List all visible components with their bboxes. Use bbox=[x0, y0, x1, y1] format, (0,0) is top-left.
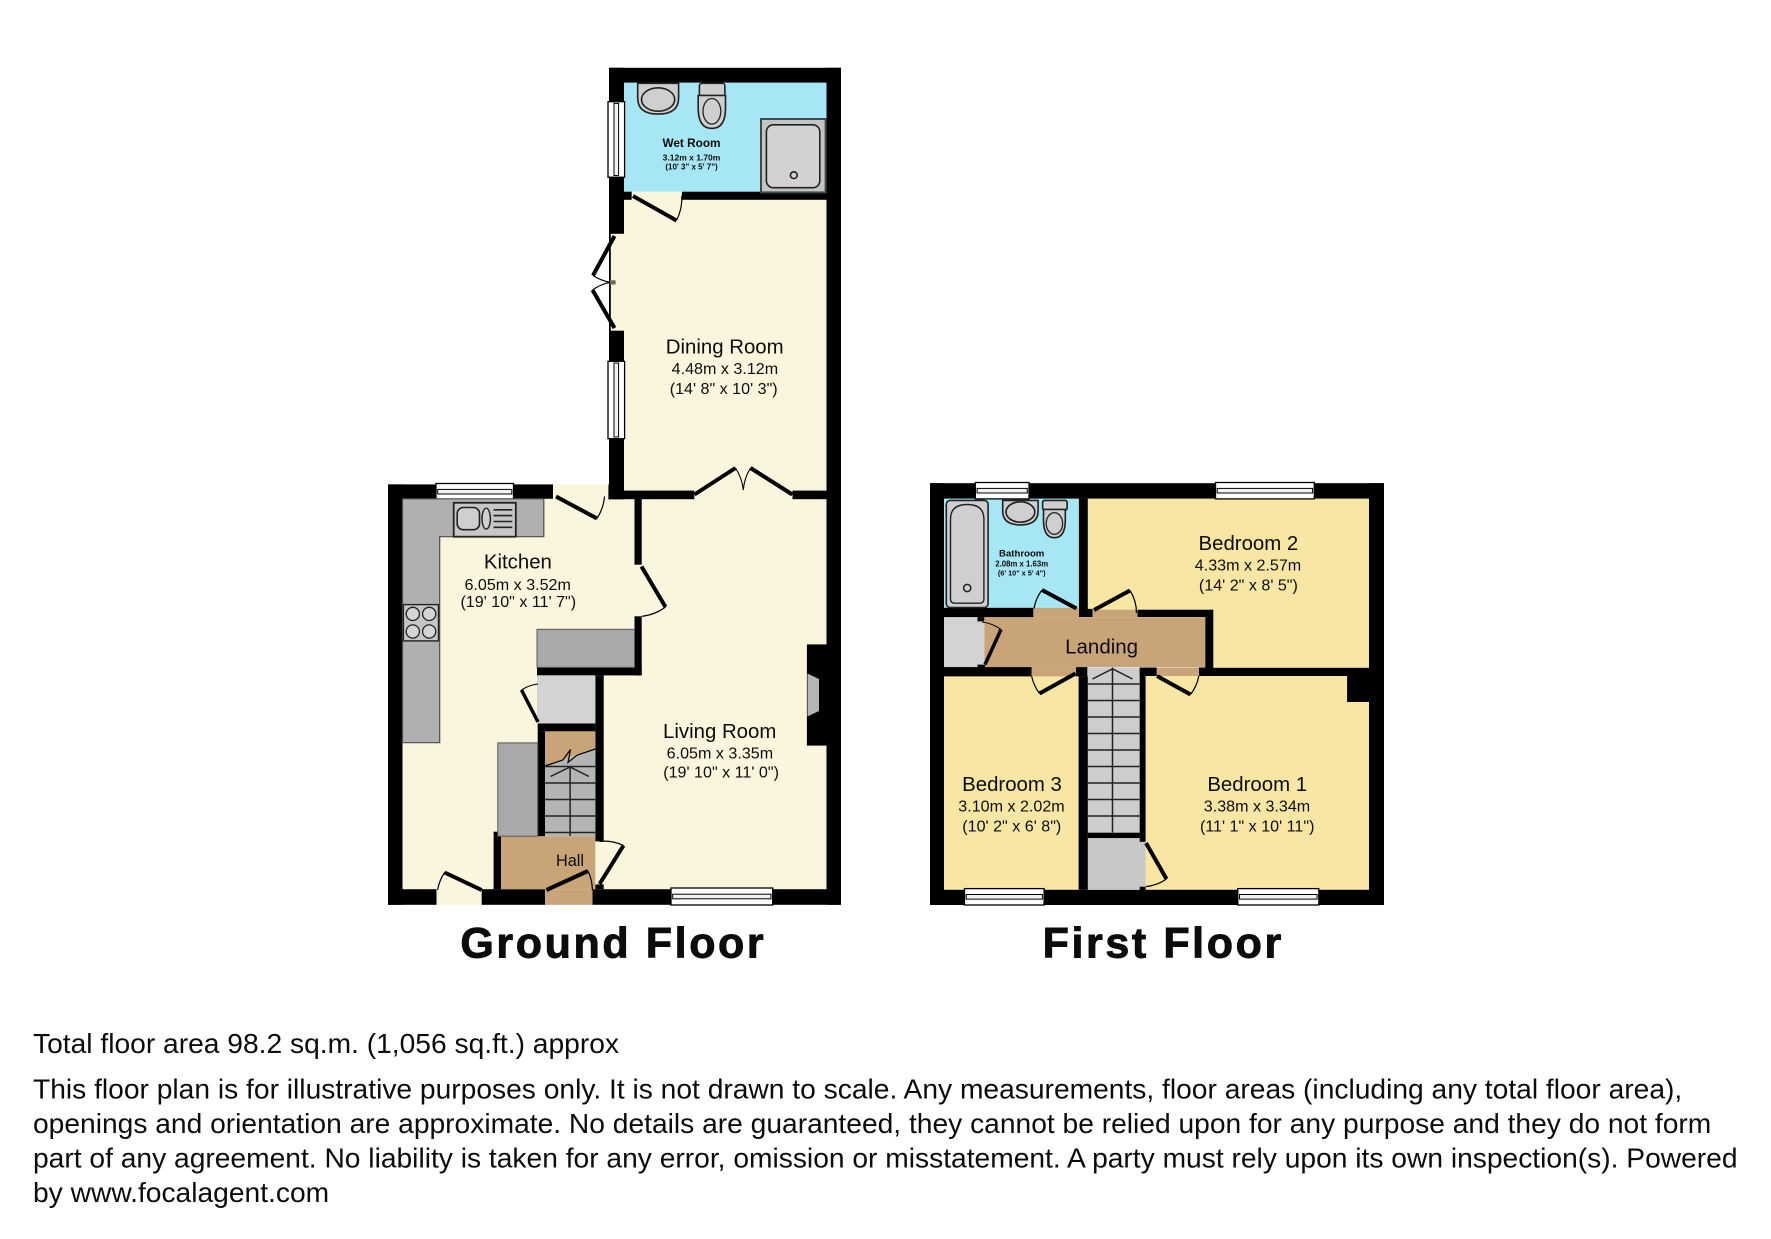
svg-text:(14' 8" x 10' 3"): (14' 8" x 10' 3") bbox=[670, 380, 778, 398]
svg-text:Hall: Hall bbox=[556, 852, 584, 870]
svg-text:Ground Floor: Ground Floor bbox=[460, 920, 766, 968]
svg-text:Wet Room: Wet Room bbox=[662, 136, 720, 150]
svg-text:(19' 10" x 11' 0"): (19' 10" x 11' 0") bbox=[663, 763, 779, 781]
svg-text:3.10m x 2.02m: 3.10m x 2.02m bbox=[958, 798, 1064, 816]
svg-text:(19' 10" x 11' 7"): (19' 10" x 11' 7") bbox=[460, 593, 576, 611]
svg-text:Bedroom 2: Bedroom 2 bbox=[1199, 533, 1299, 555]
svg-text:Landing: Landing bbox=[1065, 636, 1138, 659]
svg-text:Bathroom: Bathroom bbox=[999, 549, 1044, 560]
svg-text:4.48m x 3.12m: 4.48m x 3.12m bbox=[672, 360, 778, 378]
svg-text:This floor plan is for illustr: This floor plan is for illustrative purp… bbox=[33, 1073, 1682, 1105]
svg-text:6.05m x 3.35m: 6.05m x 3.35m bbox=[667, 745, 773, 763]
svg-text:Dining Room: Dining Room bbox=[666, 337, 784, 359]
svg-text:Living Room: Living Room bbox=[663, 721, 776, 743]
svg-text:openings and orientation are a: openings and orientation are approximate… bbox=[33, 1107, 1711, 1139]
svg-text:(10' 2" x 6' 8"): (10' 2" x 6' 8") bbox=[962, 818, 1061, 836]
svg-text:(10' 3" x 5' 7"): (10' 3" x 5' 7") bbox=[665, 162, 718, 171]
svg-text:by www.focalagent.com: by www.focalagent.com bbox=[33, 1176, 329, 1208]
svg-text:(6' 10" x 5' 4"): (6' 10" x 5' 4") bbox=[998, 569, 1046, 578]
svg-text:4.33m x 2.57m: 4.33m x 2.57m bbox=[1195, 556, 1301, 574]
svg-text:Kitchen: Kitchen bbox=[484, 551, 552, 573]
svg-text:Bedroom 3: Bedroom 3 bbox=[962, 774, 1062, 796]
svg-text:(11' 1" x 10' 11"): (11' 1" x 10' 11") bbox=[1200, 818, 1315, 836]
svg-text:(14' 2" x 8' 5"): (14' 2" x 8' 5") bbox=[1199, 577, 1298, 595]
svg-text:First Floor: First Floor bbox=[1043, 920, 1284, 968]
svg-text:part of any agreement. No liab: part of any agreement. No liability is t… bbox=[33, 1142, 1738, 1174]
svg-text:3.12m x 1.70m: 3.12m x 1.70m bbox=[663, 153, 721, 163]
svg-text:Total floor area 98.2 sq.m. (1: Total floor area 98.2 sq.m. (1,056 sq.ft… bbox=[33, 1027, 619, 1059]
svg-text:6.05m x 3.52m: 6.05m x 3.52m bbox=[464, 576, 570, 594]
svg-text:Bedroom 1: Bedroom 1 bbox=[1207, 774, 1307, 796]
svg-text:3.38m x 3.34m: 3.38m x 3.34m bbox=[1204, 798, 1310, 816]
svg-text:2.08m x 1.63m: 2.08m x 1.63m bbox=[995, 560, 1048, 569]
